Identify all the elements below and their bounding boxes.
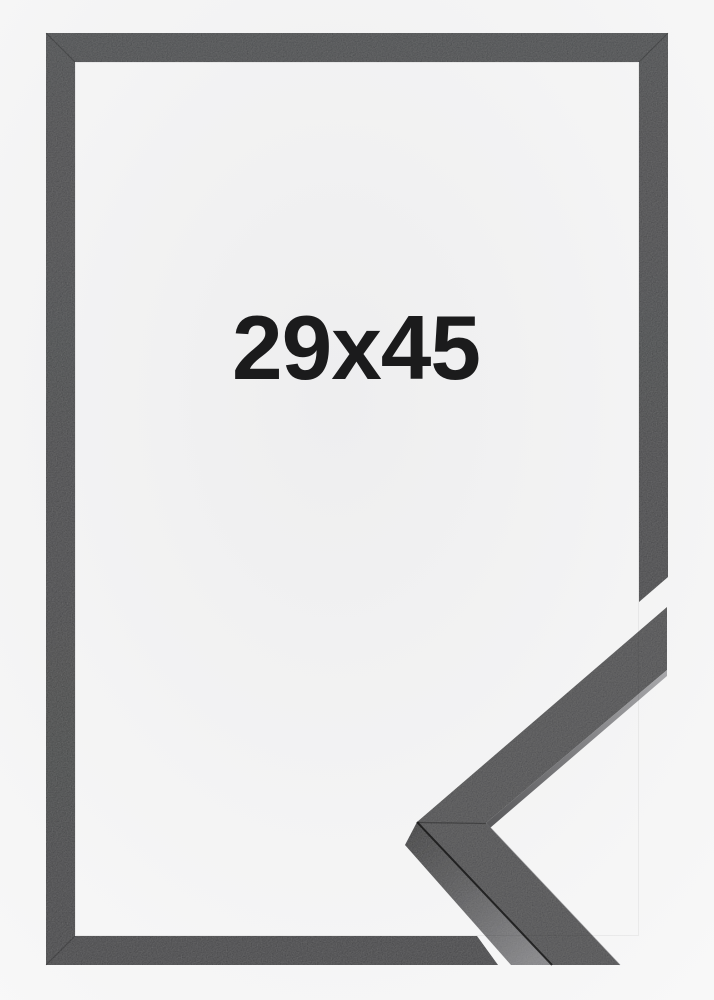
frame-product-image: 29x45: [0, 0, 714, 1000]
product-photo: 29x45: [0, 0, 714, 1000]
size-label: 29x45: [232, 298, 480, 399]
backdrop: [0, 0, 714, 1000]
